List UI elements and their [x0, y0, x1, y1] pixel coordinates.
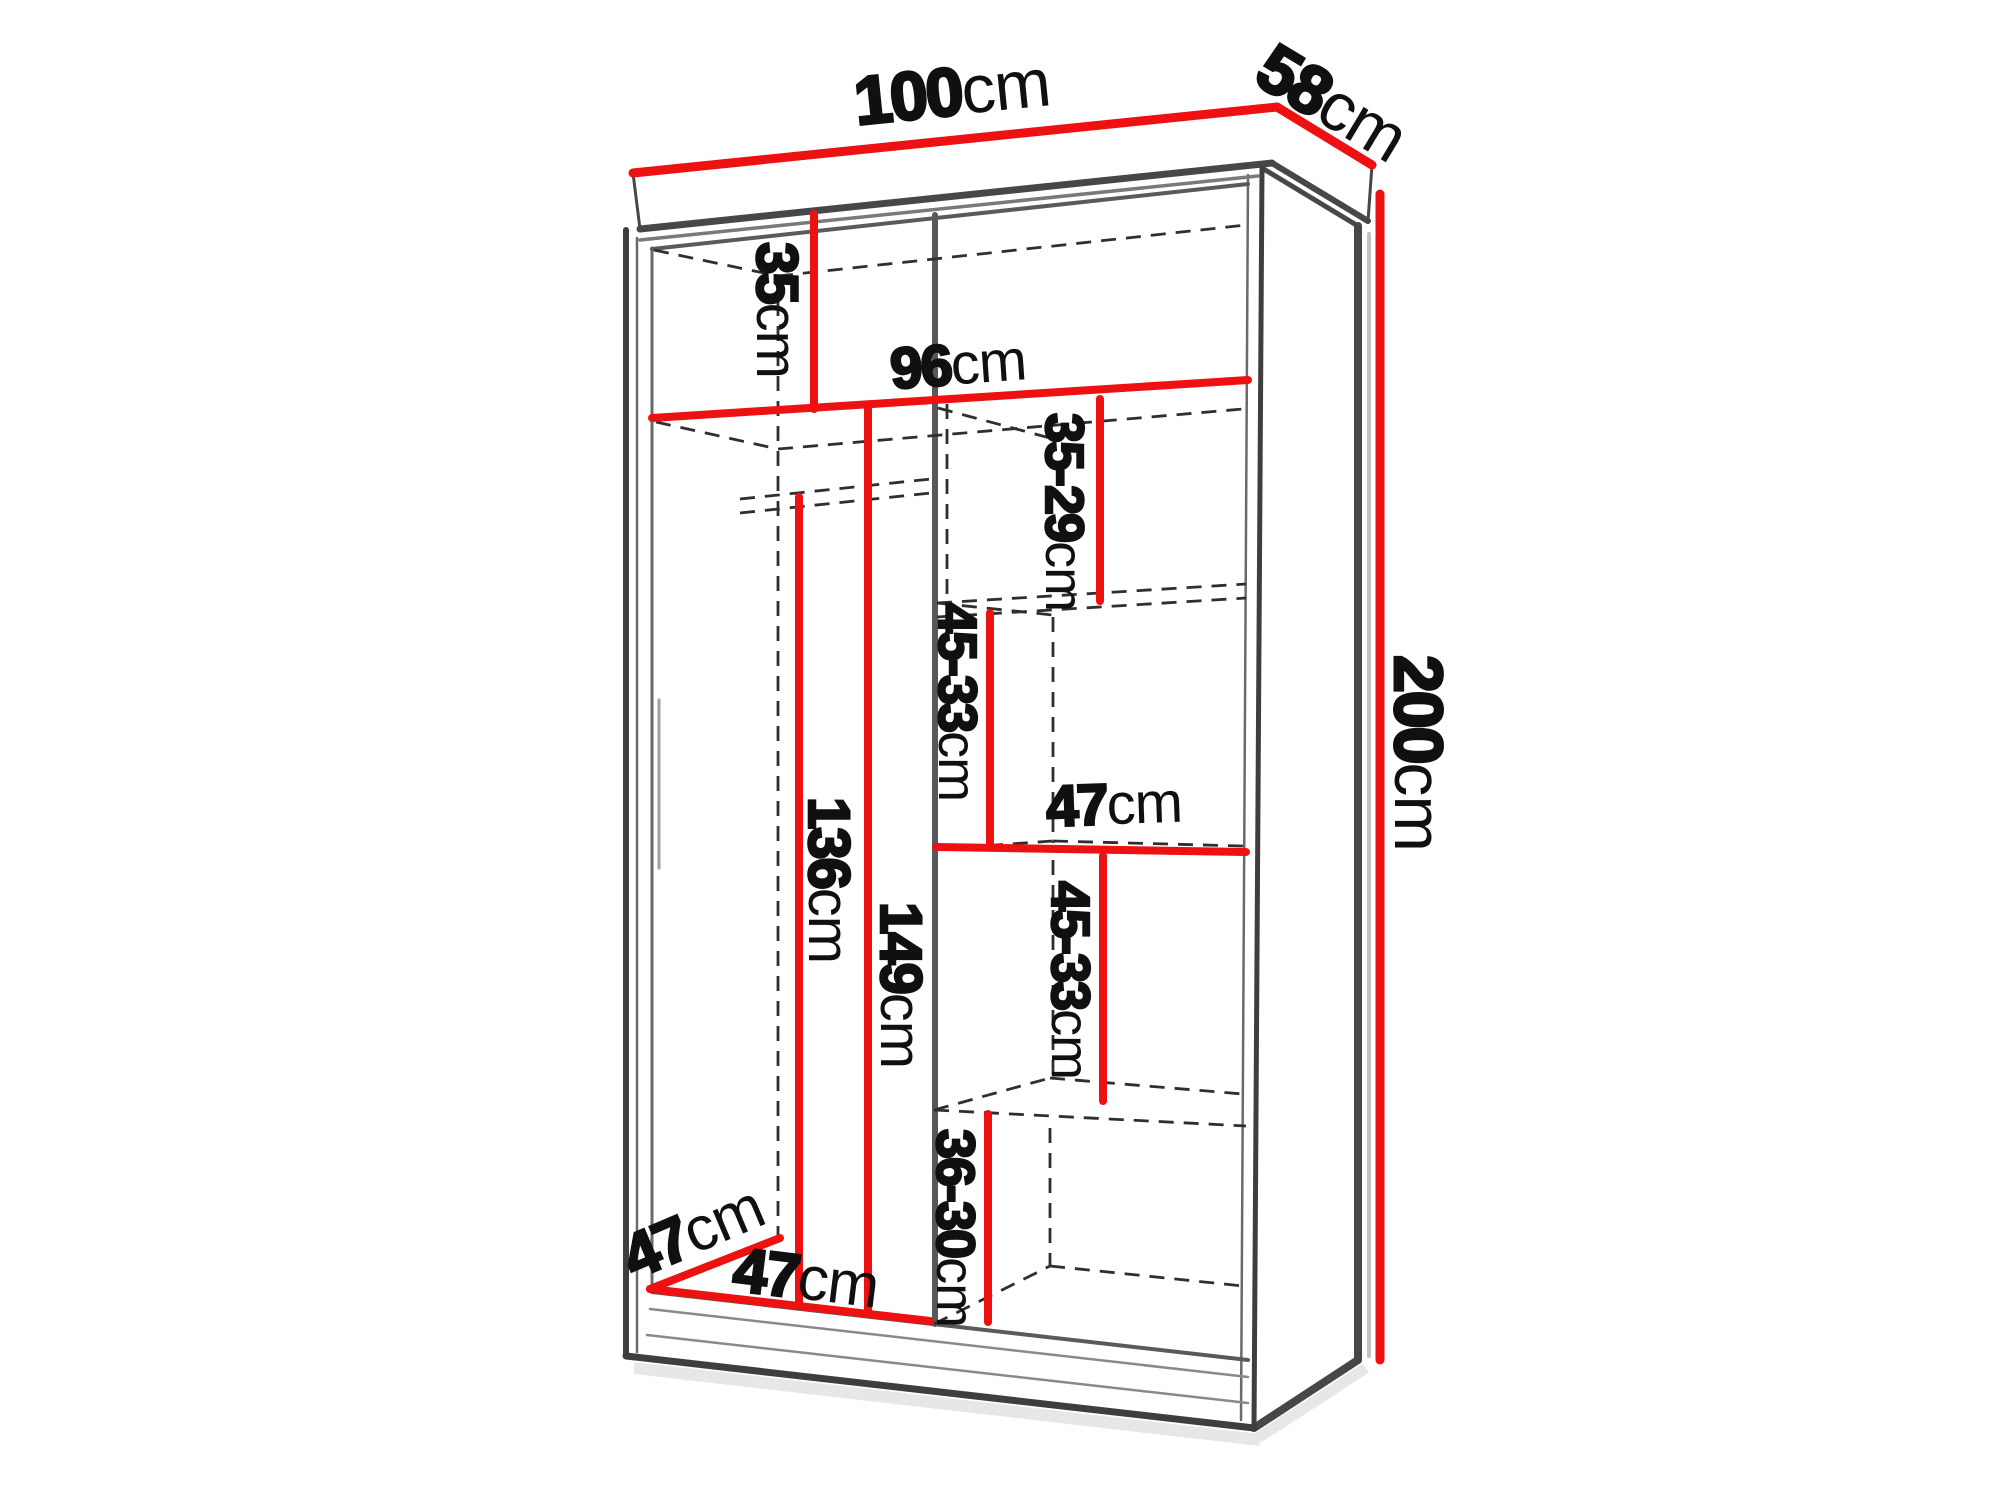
dim-label-shelf-width: 47cm — [1045, 769, 1183, 839]
dim-label-gap-lower: 45-33cm — [1040, 881, 1100, 1079]
wardrobe-dimension-diagram: 100cm58cm200cm35cm96cm35-29cm45-33cm47cm… — [0, 0, 2000, 1500]
dim-label-rail-height: 136cm — [797, 797, 862, 963]
diagram-canvas: 100cm58cm200cm35cm96cm35-29cm45-33cm47cm… — [0, 0, 2000, 1500]
dim-line-shelf-width — [936, 847, 1246, 852]
dim-label-gap-bottom: 36-30cm — [925, 1129, 985, 1327]
dim-label-gap-upper: 45-33cm — [927, 603, 987, 801]
dim-label-gap-top: 35-29cm — [1034, 413, 1094, 611]
dim-label-clear-height: 149cm — [869, 902, 934, 1068]
side-face — [1254, 168, 1358, 1428]
dim-label-overall-height: 200cm — [1380, 655, 1456, 851]
dim-label-top-shelf-drop: 35cm — [745, 242, 810, 378]
dim-label-overall-width: 100cm — [851, 44, 1054, 139]
dim-label-interior-width: 96cm — [888, 327, 1028, 401]
